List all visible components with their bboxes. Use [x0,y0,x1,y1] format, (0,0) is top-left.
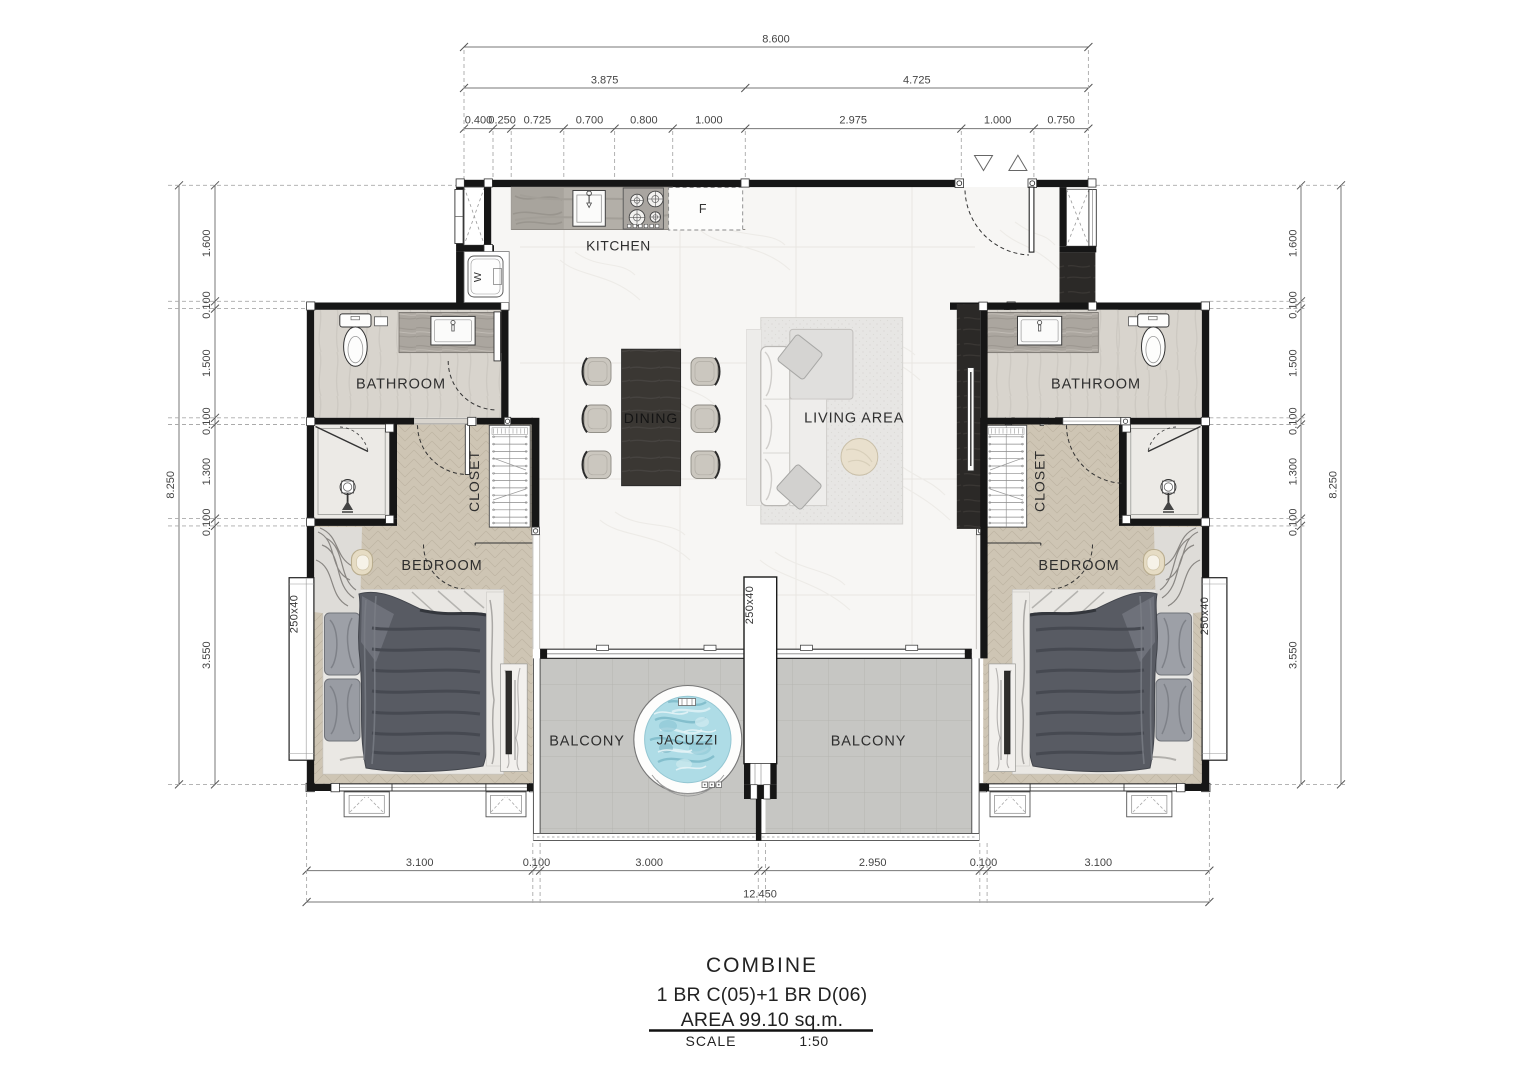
svg-text:3.550: 3.550 [1288,641,1300,669]
svg-text:KITCHEN: KITCHEN [586,239,651,254]
svg-text:250x40: 250x40 [289,595,301,634]
svg-text:CLOSET: CLOSET [466,450,482,512]
svg-text:2.975: 2.975 [839,115,867,127]
svg-text:1.000: 1.000 [984,115,1012,127]
svg-text:12.450: 12.450 [743,889,777,901]
svg-text:BATHROOM: BATHROOM [1051,377,1141,393]
svg-text:SCALE: SCALE [686,1033,737,1049]
svg-text:0.100: 0.100 [970,857,998,869]
svg-text:1.600: 1.600 [1288,230,1300,258]
svg-text:4.725: 4.725 [903,75,931,87]
svg-text:0.100: 0.100 [1288,509,1300,537]
svg-text:250x40: 250x40 [744,586,756,625]
svg-text:DINING: DINING [624,410,678,426]
svg-text:3.100: 3.100 [406,857,434,869]
svg-text:0.100: 0.100 [201,291,213,319]
svg-text:BEDROOM: BEDROOM [1038,558,1119,574]
svg-text:0.750: 0.750 [1047,115,1075,127]
svg-text:AREA 99.10 sq.m.: AREA 99.10 sq.m. [681,1009,844,1031]
svg-text:0.100: 0.100 [1288,407,1300,435]
svg-text:1.500: 1.500 [1288,349,1300,377]
svg-text:3.875: 3.875 [591,75,619,87]
svg-text:1:50: 1:50 [799,1033,828,1049]
svg-text:1.000: 1.000 [695,115,723,127]
svg-text:0.100: 0.100 [523,857,551,869]
svg-text:8.250: 8.250 [165,471,177,499]
svg-text:2.950: 2.950 [859,857,887,869]
svg-text:BEDROOM: BEDROOM [401,558,482,574]
svg-text:3.550: 3.550 [201,641,213,669]
svg-text:8.600: 8.600 [762,34,790,46]
svg-text:BALCONY: BALCONY [549,734,625,750]
svg-text:250x40: 250x40 [1199,597,1211,636]
svg-text:JACUZZI: JACUZZI [657,733,719,748]
svg-text:CLOSET: CLOSET [1032,450,1048,512]
svg-text:W: W [472,272,484,282]
svg-text:0.100: 0.100 [201,407,213,435]
svg-text:1.300: 1.300 [1288,458,1300,486]
svg-text:3.000: 3.000 [635,857,663,869]
svg-text:8.250: 8.250 [1328,471,1340,499]
svg-text:0.100: 0.100 [1288,291,1300,319]
svg-text:LIVING AREA: LIVING AREA [804,411,904,427]
svg-text:3.100: 3.100 [1085,857,1113,869]
svg-text:0.700: 0.700 [576,115,604,127]
svg-text:COMBINE: COMBINE [706,954,818,977]
svg-text:BATHROOM: BATHROOM [356,377,446,393]
svg-text:0.250: 0.250 [488,115,516,127]
svg-text:BALCONY: BALCONY [831,734,907,750]
svg-text:0.800: 0.800 [630,115,658,127]
svg-text:0.725: 0.725 [524,115,552,127]
svg-text:0.100: 0.100 [201,509,213,537]
svg-text:1 BR C(05)+1 BR D(06): 1 BR C(05)+1 BR D(06) [657,984,868,1006]
svg-text:1.500: 1.500 [201,349,213,377]
svg-text:1.600: 1.600 [201,230,213,258]
svg-text:F: F [699,202,707,216]
svg-text:1.300: 1.300 [201,458,213,486]
